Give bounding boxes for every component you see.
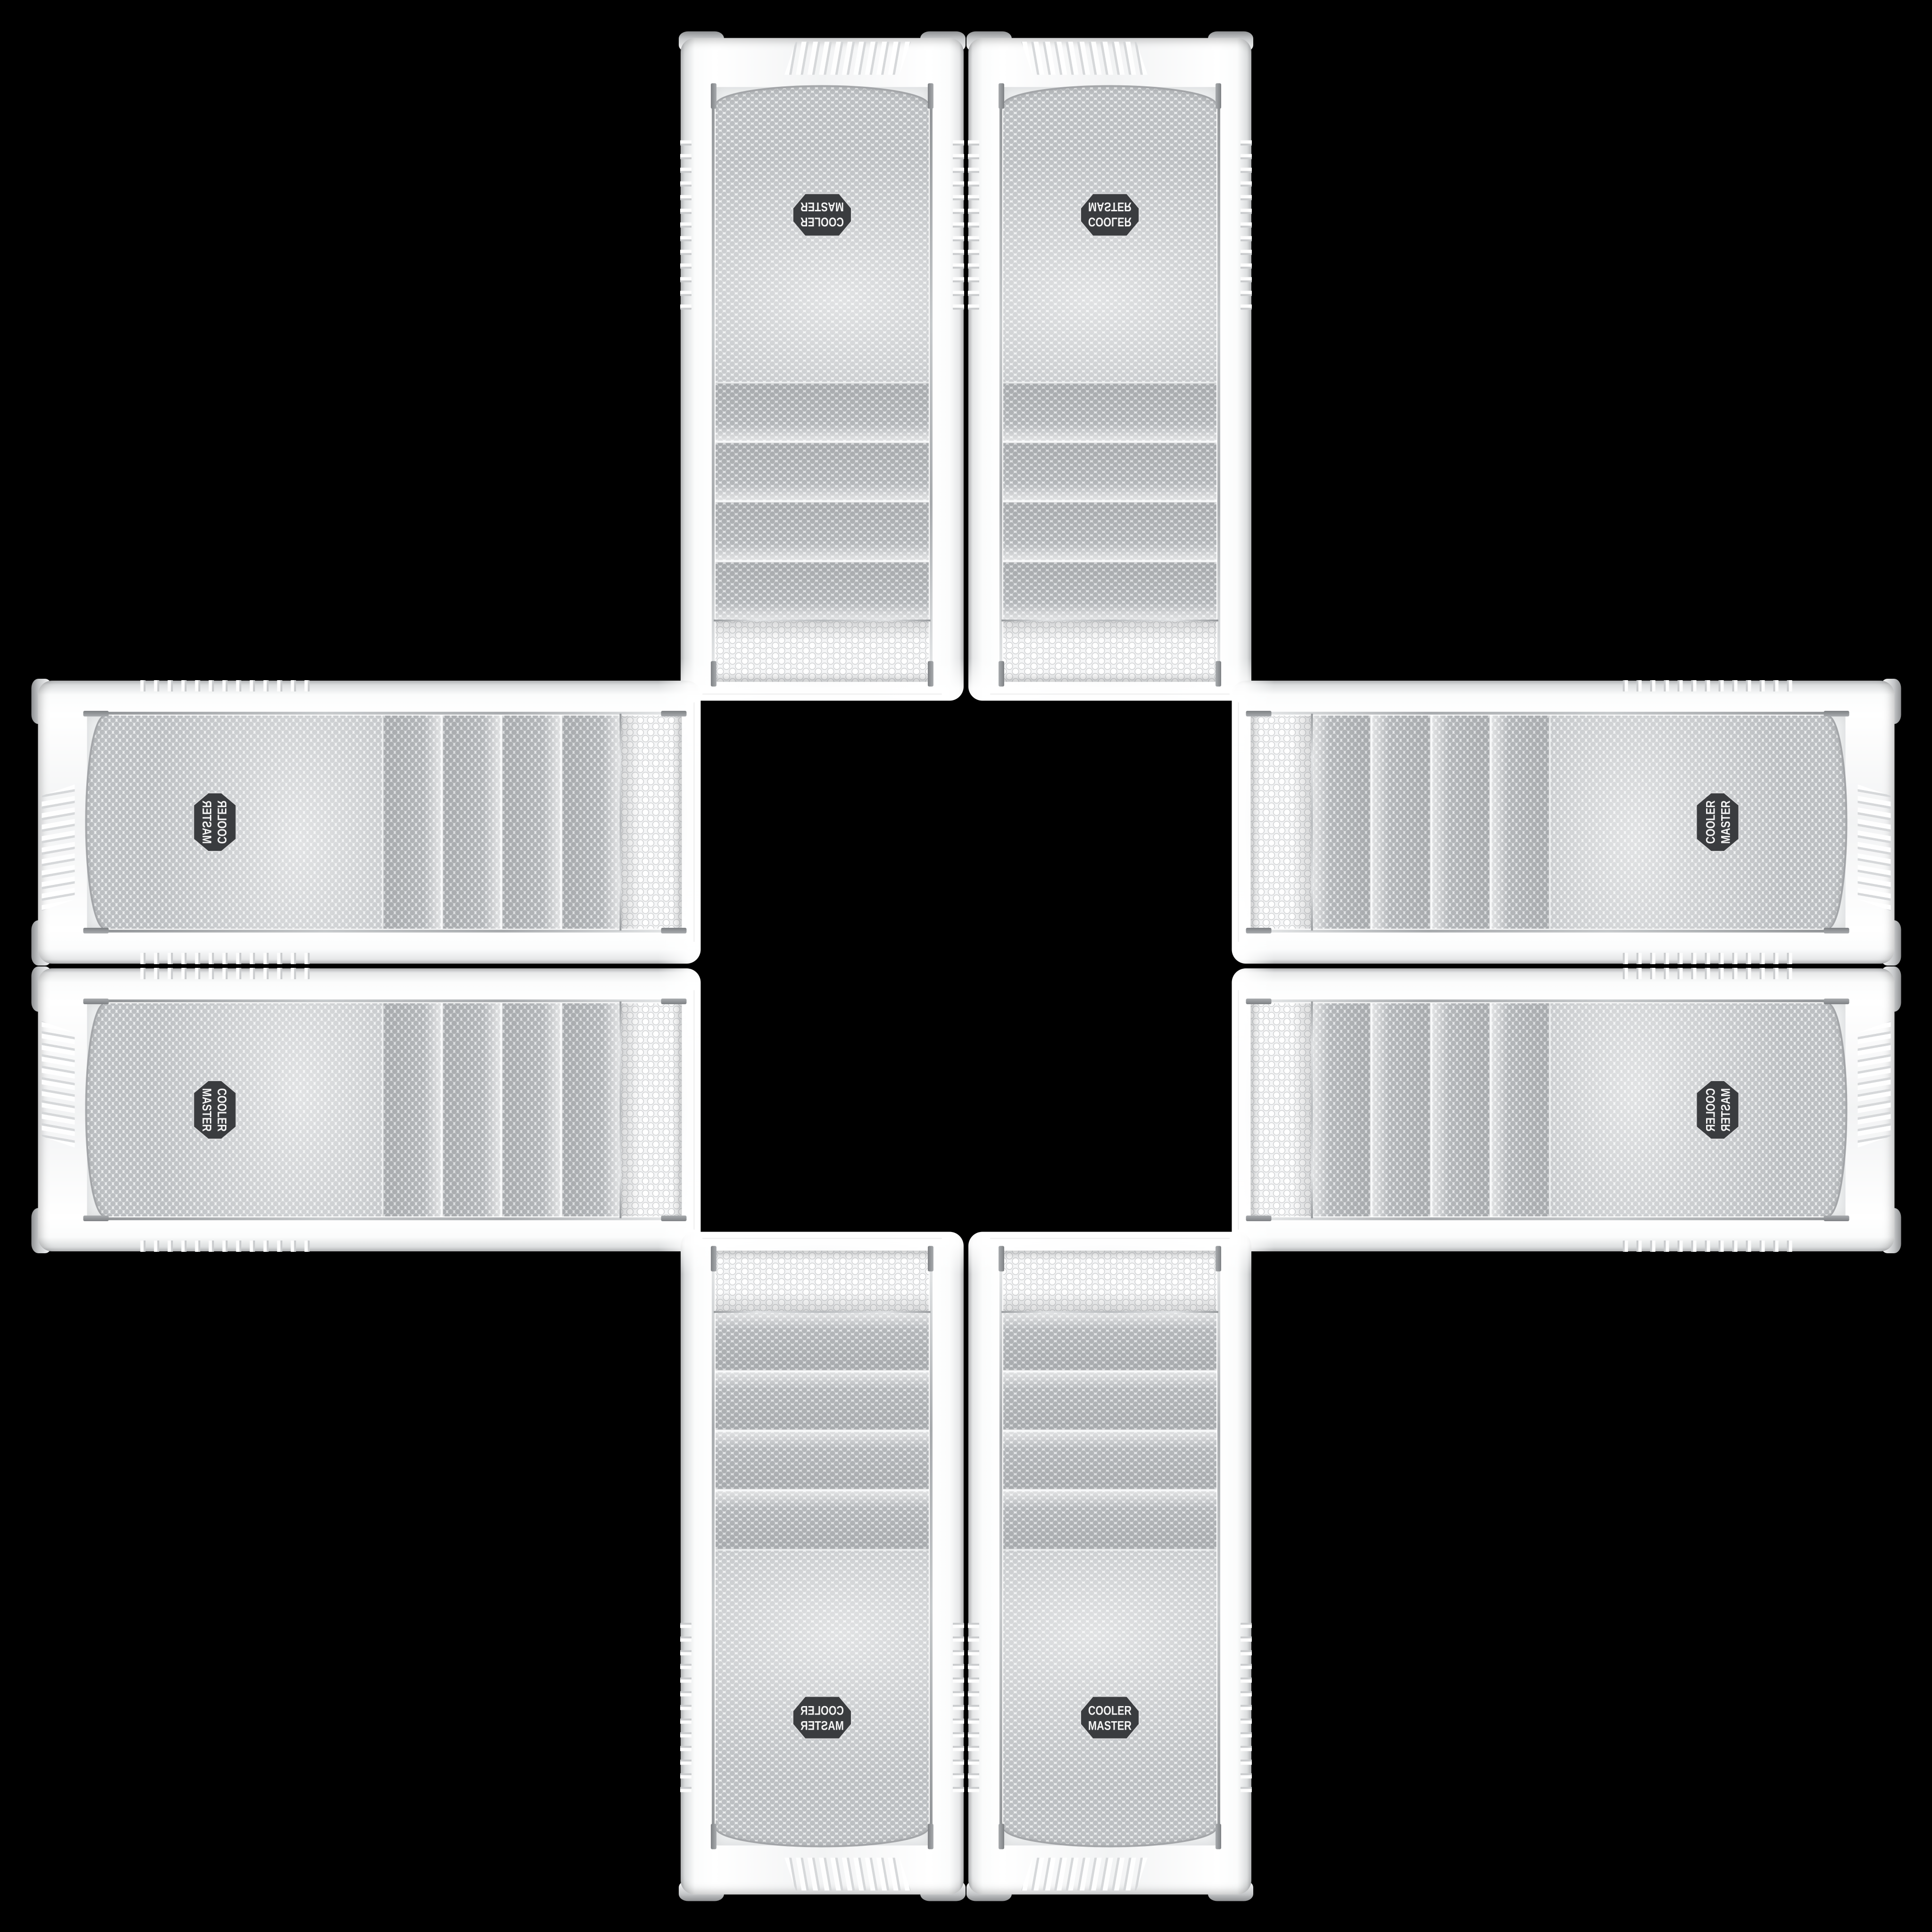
chrome-trim-left [1249,930,1846,933]
badge-text-line1: COOLER [215,800,229,844]
cooler-master-badge: COOLER MASTER [792,1696,852,1739]
panel-clip [1216,661,1221,686]
badge-text-line1: COOLER [800,1703,844,1717]
drive-bay-cover [716,1313,929,1370]
panel-clip [711,1246,716,1271]
bottom-bezel-grooves [1021,42,1148,75]
drive-bay-cover [503,1003,560,1216]
front-panel: COOLER MASTER [1003,87,1216,682]
top-cap-seam [1238,702,1239,942]
panel-clip [1824,1216,1849,1221]
front-panel: COOLER MASTER [716,87,929,682]
chrome-trim-left [86,999,683,1002]
case-body: COOLER MASTER [681,1232,964,1894]
intake-mesh-panel: COOLER MASTER [1550,716,1845,929]
drive-bay-stack [716,1313,929,1549]
badge-text-line2: MASTER [200,800,214,844]
cooler-master-badge: COOLER MASTER [193,792,236,852]
chrome-trim-top [619,1001,621,1218]
chrome-trim-right [712,86,715,683]
drive-bay-cover [562,1003,619,1216]
drive-bay-stack [716,383,929,619]
panel-clip [1824,928,1849,933]
panel-clip [661,711,686,716]
intake-mesh-panel: COOLER MASTER [87,716,382,929]
panel-clip [1824,711,1849,716]
panel-clip [928,1246,933,1271]
intake-mesh-panel: COOLER MASTER [1003,1550,1216,1845]
drive-bay-cover [1372,1003,1429,1216]
drive-bay-cover [443,716,500,929]
badge-text-line2: MASTER [1718,800,1732,844]
bottom-bezel-grooves [1857,1021,1890,1148]
side-grip-ribs-left [968,1619,979,1798]
panel-clip [928,83,933,108]
panel-clip [999,1246,1004,1271]
case-body: COOLER MASTER [1232,968,1894,1251]
drive-bay-cover [1432,716,1489,929]
case-top-left: COOLER MASTER [681,38,964,700]
bottom-bezel-grooves [1857,784,1890,911]
case-left-bottom: COOLER MASTER [38,968,700,1251]
side-grip-ribs-left [134,968,313,979]
badge-text-line2: MASTER [1718,1088,1732,1132]
case-right-top: COOLER MASTER [1232,681,1894,964]
panel-clip [1216,1824,1221,1849]
front-panel: COOLER MASTER [87,1003,682,1216]
panel-clip [1216,1246,1221,1271]
top-cap-seam [693,990,694,1230]
chrome-trim-top [1001,619,1218,621]
top-vent-mesh [621,716,682,929]
badge-text-line1: COOLER [215,1088,229,1132]
chrome-trim-top [714,619,931,621]
case-right-bottom: COOLER MASTER [1232,968,1894,1251]
chrome-trim-right [1217,1249,1220,1846]
drive-bay-cover [716,1372,929,1429]
side-grip-ribs-left [1619,953,1798,964]
top-vent-mesh [716,1250,929,1311]
cooler-master-badge: COOLER MASTER [1696,792,1739,852]
bottom-bezel-grooves [1021,1857,1148,1890]
case-top-right: COOLER MASTER [968,38,1251,700]
case-body: COOLER MASTER [1232,681,1894,964]
drive-bay-cover [1003,383,1216,441]
case-body: COOLER MASTER [968,1232,1251,1894]
top-cap-seam [1238,990,1239,1230]
badge-text-line1: COOLER [1088,215,1132,229]
drive-bay-cover [716,562,929,619]
side-grip-ribs-right [134,680,313,691]
top-cap-seam [990,1238,1230,1239]
panel-clip [1246,711,1271,716]
drive-bay-stack [1313,716,1549,929]
drive-bay-cover [1003,443,1216,500]
badge-text-line2: MASTER [200,1088,214,1132]
badge-text-line2: MASTER [1088,1718,1132,1732]
cooler-master-badge: COOLER MASTER [1696,1080,1739,1140]
side-grip-ribs-left [134,953,313,964]
side-grip-ribs-left [953,1619,964,1798]
cooler-master-badge: COOLER MASTER [1080,193,1140,236]
panel-clip [1246,928,1271,933]
top-cap-seam [990,693,1230,694]
badge-text-line1: COOLER [1088,1703,1132,1717]
drive-bay-cover [503,716,560,929]
top-vent-mesh [1250,1003,1311,1216]
panel-clip [83,999,108,1004]
case-bottom-left: COOLER MASTER [681,1232,964,1894]
drive-bay-cover [1003,1491,1216,1549]
chrome-trim-top [1311,714,1313,931]
chrome-trim-left [1249,999,1846,1002]
intake-mesh-panel: COOLER MASTER [1550,1003,1845,1216]
chrome-trim-right [86,712,683,715]
intake-mesh-panel: COOLER MASTER [1003,87,1216,382]
panel-clip [1824,999,1849,1004]
drive-bay-cover [1491,1003,1549,1216]
side-grip-ribs-left [968,134,979,313]
front-panel: COOLER MASTER [1003,1250,1216,1845]
drive-bay-cover [1003,562,1216,619]
drive-bay-cover [383,716,441,929]
panel-clip [711,83,716,108]
intake-mesh-panel: COOLER MASTER [87,1003,382,1216]
drive-bay-cover [716,383,929,441]
badge-text-line2: MASTER [1088,200,1132,214]
drive-bay-stack [1003,1313,1216,1549]
drive-bay-cover [1313,1003,1370,1216]
black-canvas: { "scene": { "background": "#000000", "a… [0,0,1932,1932]
panel-clip [1246,1216,1271,1221]
panel-clip [999,661,1004,686]
chrome-trim-top [1311,1001,1313,1218]
drive-bay-stack [383,1003,619,1216]
side-grip-ribs-right [680,134,691,313]
badge-text-line1: COOLER [800,215,844,229]
drive-bay-cover [716,503,929,560]
case-body: COOLER MASTER [681,38,964,700]
bottom-bezel-grooves [784,42,911,75]
badge-text-line2: MASTER [800,1718,844,1732]
case-body: COOLER MASTER [38,968,700,1251]
front-panel: COOLER MASTER [1250,716,1845,929]
top-vent-mesh [621,1003,682,1216]
drive-bay-stack [1313,1003,1549,1216]
chrome-trim-right [1249,1217,1846,1220]
front-panel: COOLER MASTER [87,716,682,929]
cooler-master-badge: COOLER MASTER [193,1080,236,1140]
intake-mesh-panel: COOLER MASTER [716,87,929,382]
top-cap-seam [693,702,694,942]
drive-bay-cover [716,1491,929,1549]
top-cap-seam [702,693,942,694]
front-panel: COOLER MASTER [716,1250,929,1845]
panel-clip [661,928,686,933]
chrome-trim-right [712,1249,715,1846]
top-cap-seam [702,1238,942,1239]
chrome-trim-right [1217,86,1220,683]
panel-clip [661,1216,686,1221]
drive-bay-cover [1003,1372,1216,1429]
chrome-trim-left [930,86,933,683]
drive-bay-cover [1003,1432,1216,1489]
side-grip-ribs-right [1241,1619,1252,1798]
drive-bay-cover [443,1003,500,1216]
top-vent-mesh [716,621,929,682]
bottom-bezel-grooves [784,1857,911,1890]
panel-clip [711,661,716,686]
top-vent-mesh [1003,621,1216,682]
panel-clip [83,711,108,716]
drive-bay-cover [716,443,929,500]
chrome-trim-top [619,714,621,931]
drive-bay-cover [716,1432,929,1489]
badge-text-line1: COOLER [1703,800,1717,844]
panel-clip [999,1824,1004,1849]
chrome-trim-left [999,1249,1002,1846]
side-grip-ribs-right [1241,134,1252,313]
panel-clip [661,999,686,1004]
chrome-trim-left [930,1249,933,1846]
side-grip-ribs-right [134,1241,313,1252]
top-vent-mesh [1250,716,1311,929]
side-grip-ribs-right [1619,1241,1798,1252]
side-grip-ribs-left [953,134,964,313]
badge-text-line1: COOLER [1703,1088,1717,1132]
panel-clip [1216,83,1221,108]
drive-bay-cover [1491,716,1549,929]
bottom-bezel-grooves [42,1021,75,1148]
panel-clip [928,1824,933,1849]
chrome-trim-right [1249,712,1846,715]
chrome-trim-left [999,86,1002,683]
panel-clip [928,661,933,686]
cooler-master-badge: COOLER MASTER [792,193,852,236]
chrome-trim-right [86,1217,683,1220]
drive-bay-cover [1003,1313,1216,1370]
drive-bay-stack [383,716,619,929]
intake-mesh-panel: COOLER MASTER [716,1550,929,1845]
panel-clip [83,1216,108,1221]
front-panel: COOLER MASTER [1250,1003,1845,1216]
badge-text-line2: MASTER [800,200,844,214]
drive-bay-cover [1432,1003,1489,1216]
drive-bay-cover [1313,716,1370,929]
drive-bay-stack [1003,383,1216,619]
case-body: COOLER MASTER [38,681,700,964]
drive-bay-cover [562,716,619,929]
drive-bay-cover [1372,716,1429,929]
side-grip-ribs-left [1619,968,1798,979]
case-bottom-right: COOLER MASTER [968,1232,1251,1894]
drive-bay-cover [383,1003,441,1216]
chrome-trim-left [86,930,683,933]
case-body: COOLER MASTER [968,38,1251,700]
side-grip-ribs-right [680,1619,691,1798]
panel-clip [83,928,108,933]
panel-clip [999,83,1004,108]
bottom-bezel-grooves [42,784,75,911]
top-vent-mesh [1003,1250,1216,1311]
panel-clip [1246,999,1271,1004]
side-grip-ribs-right [1619,680,1798,691]
drive-bay-cover [1003,503,1216,560]
panel-clip [711,1824,716,1849]
case-left-top: COOLER MASTER [38,681,700,964]
cooler-master-badge: COOLER MASTER [1080,1696,1140,1739]
